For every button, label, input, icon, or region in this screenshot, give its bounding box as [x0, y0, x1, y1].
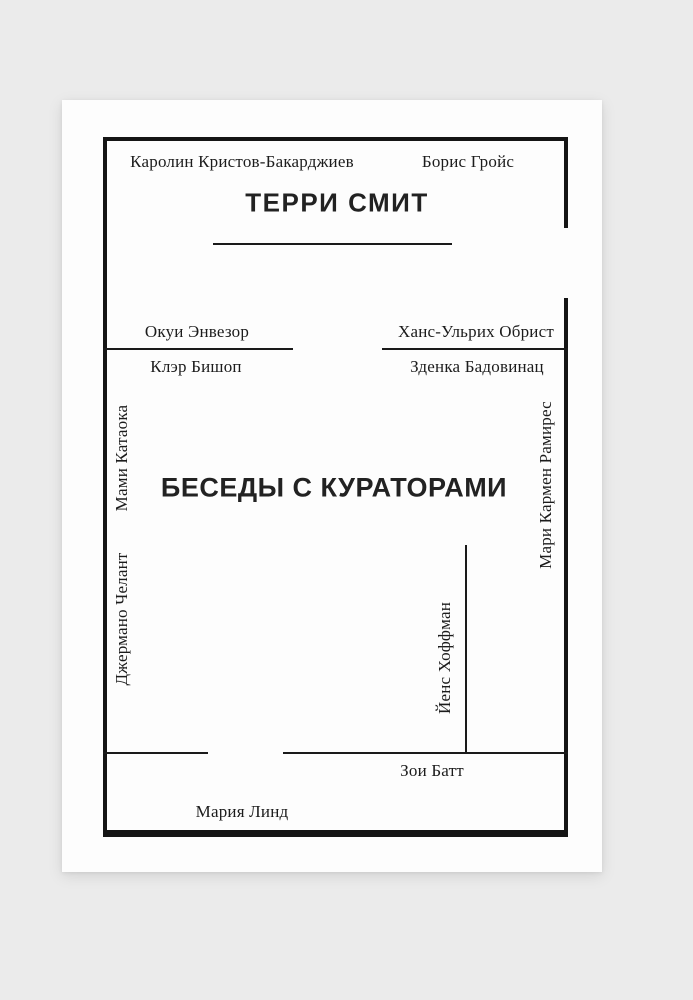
curator-name-hans-ulrich-obrist: Ханс-Ульрих Обрист — [398, 322, 554, 342]
book-title: БЕСЕДЫ С КУРАТОРАМИ — [161, 473, 507, 504]
curator-name-jens-hoffmann: Йенс Хоффман — [435, 602, 455, 714]
curator-name-mami-kataoka: Мами Катаока — [112, 405, 132, 512]
frame-right-border-upper-segment — [564, 137, 568, 228]
curator-name-boris-groys: Борис Гройс — [422, 152, 514, 172]
frame-top-border — [103, 137, 568, 141]
inner-vertical-line — [465, 545, 467, 754]
frame-right-border-lower-segment — [564, 298, 568, 837]
product-image: ТЕРРИ СМИТ БЕСЕДЫ С КУРАТОРАМИ Каролин К… — [0, 0, 693, 1000]
bottom-divider-right — [283, 752, 568, 754]
author-underline — [213, 243, 452, 245]
middle-divider-left — [103, 348, 293, 350]
curator-name-mari-carmen-ramirez: Мари Кармен Рамирес — [536, 401, 556, 569]
middle-divider-right — [382, 348, 568, 350]
frame-bottom-border — [103, 830, 568, 837]
curator-name-okwui-enwezor: Окуи Энвезор — [145, 322, 249, 342]
curator-name-zoe-butt: Зои Батт — [400, 761, 464, 781]
frame-left-border — [103, 137, 107, 837]
book-cover: ТЕРРИ СМИТ БЕСЕДЫ С КУРАТОРАМИ Каролин К… — [62, 100, 602, 872]
bottom-divider-left — [103, 752, 208, 754]
curator-name-claire-bishop: Клэр Бишоп — [150, 357, 241, 377]
curator-name-kristov-bakargiev: Каролин Кристов-Бакарджиев — [130, 152, 354, 172]
author-name: ТЕРРИ СМИТ — [245, 188, 428, 219]
curator-name-maria-lind: Мария Линд — [196, 802, 289, 822]
curator-name-zdenka-badovinac: Зденка Бадовинац — [410, 357, 544, 377]
curator-name-germano-celant: Джермано Челант — [112, 552, 132, 685]
